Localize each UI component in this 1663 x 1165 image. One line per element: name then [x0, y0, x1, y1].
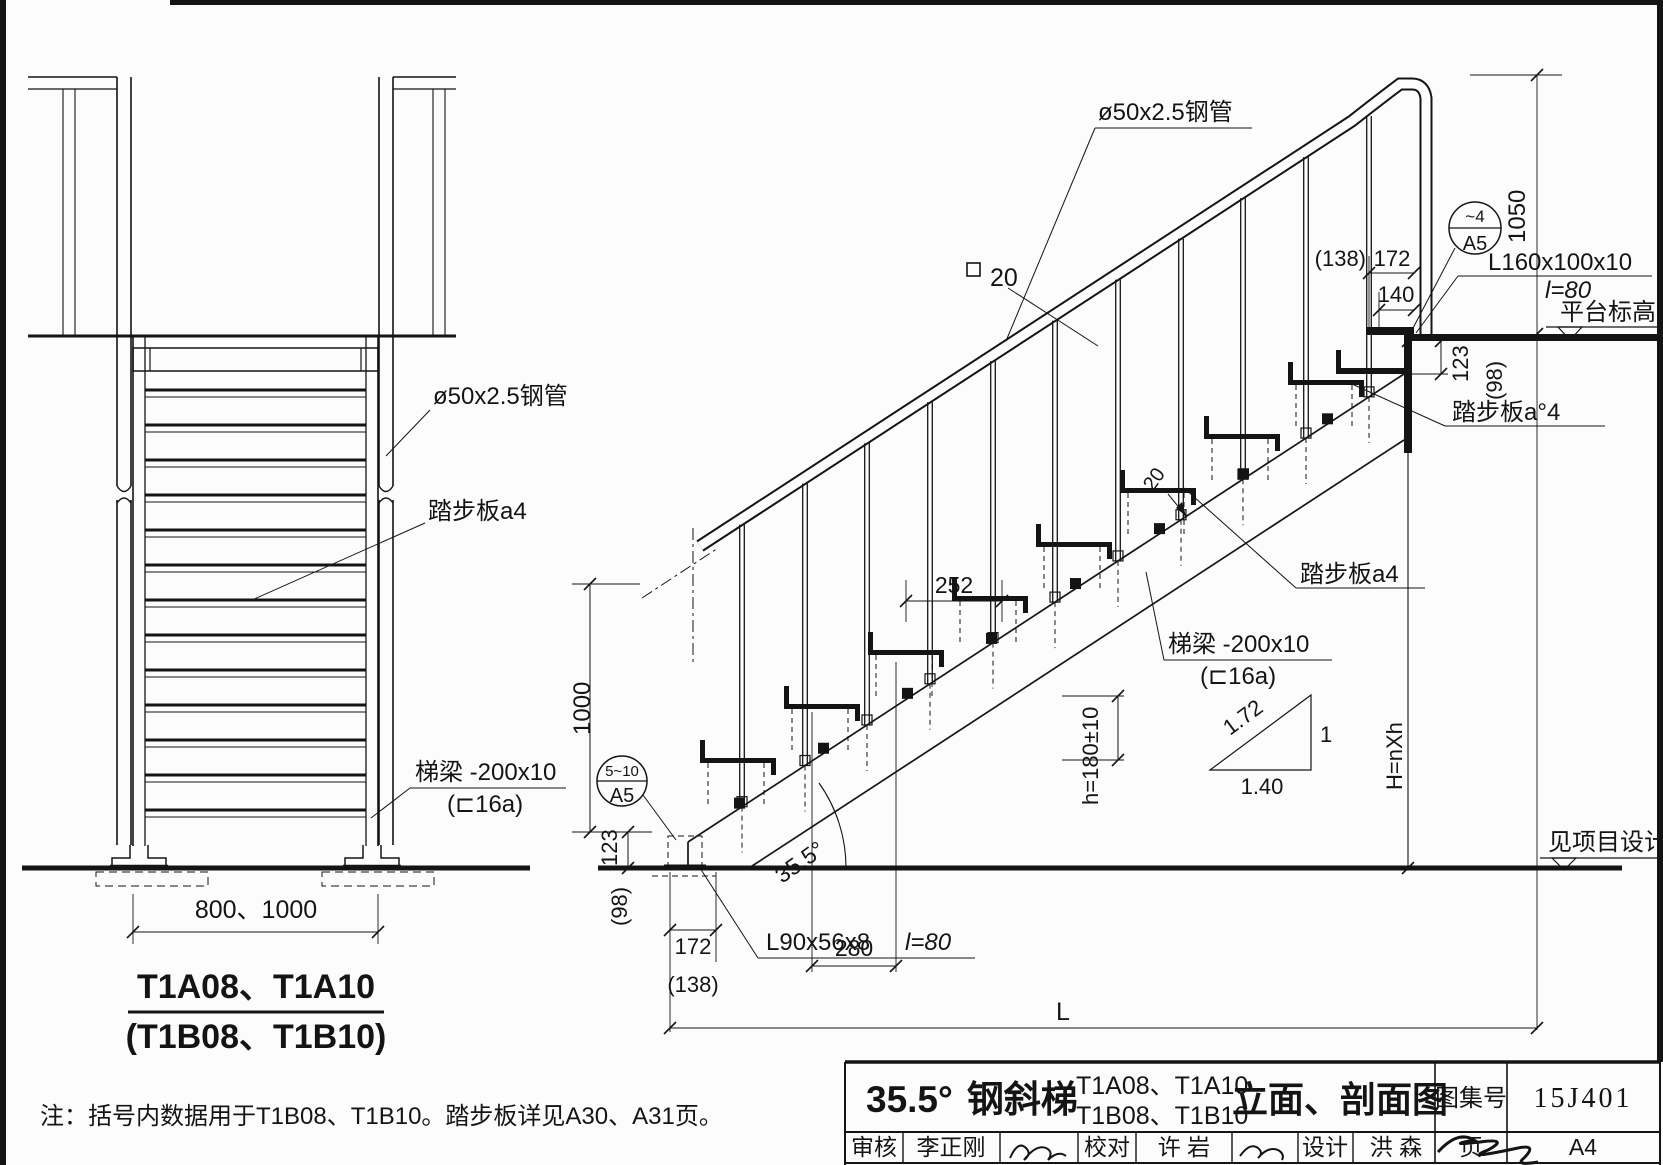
tread-bar [700, 758, 776, 763]
label-angle-cleat: L160x100x10 [1488, 249, 1632, 276]
dim-slope-angle: 35.5° [770, 836, 829, 888]
tread-downstub [771, 763, 776, 775]
title-block: 35.5°钢斜梯 T1A08、T1A10 T1B08、T1B10 立面、剖面图 … [845, 1062, 1660, 1165]
check-name: 许 岩 [1158, 1134, 1210, 1160]
view-title-1: T1A08、T1A10 [137, 968, 375, 1006]
step-dimensions: 252 280 h=180±10 35.5° [770, 572, 1124, 972]
slope-horizontal: 1.40 [1241, 774, 1284, 799]
tread-bar [1288, 380, 1364, 385]
tread-bar [1036, 542, 1112, 547]
tread-downstub [1359, 385, 1364, 397]
signature-checker [1240, 1146, 1283, 1160]
tread-downstub [1023, 601, 1028, 613]
tread-bar [1204, 434, 1280, 439]
label-base-cleat: L90x56x8 [766, 929, 870, 956]
label-pipe: ø50x2.5钢管 [433, 383, 568, 410]
tread-upstub [1288, 362, 1293, 380]
label-tread-mid: 踏步板a4 [1300, 561, 1399, 588]
label-ground-level: 见项目设计 [1548, 829, 1663, 856]
label-pipe: ø50x2.5钢管 [1098, 99, 1233, 126]
bottom-left-dimensions: 1000 5~10 A5 123 (98) 172 (138) L90x56x8… [569, 584, 1537, 1032]
front-view-title: T1A08、T1A10 (T1B08、T1B10) [126, 968, 387, 1056]
sheet-type: 立面、剖面图 [1232, 1079, 1448, 1120]
dim-138: (138) [1315, 246, 1366, 271]
tread-upstub [1036, 524, 1041, 542]
label-beam-2: (⊏16a) [1200, 663, 1276, 690]
signature-reviewer [1010, 1146, 1066, 1160]
check-label: 校对 [1084, 1134, 1130, 1160]
axis-line [642, 548, 718, 598]
weld-ref: A5 [610, 785, 634, 807]
dim-172-bottom: 172 [675, 934, 712, 959]
tread-seat [902, 688, 913, 699]
tread-seat [1154, 523, 1165, 534]
dim-1000: 1000 [569, 682, 596, 735]
width-dimension: 800、1000 [133, 894, 378, 944]
dim-98-bottom: (98) [607, 887, 632, 926]
tread-downstub [1275, 439, 1280, 451]
dim-height-formula: H=nXh [1382, 722, 1407, 790]
dim-98-top: (98) [1482, 361, 1507, 400]
review-label: 审核 [851, 1134, 897, 1160]
dim-140: 140 [1378, 282, 1415, 307]
dim-1050: 1050 [1504, 190, 1531, 243]
page-number: A4 [1569, 1134, 1597, 1160]
review-name: 李正刚 [917, 1134, 986, 1160]
weld-symbol: 5~10 [605, 763, 639, 780]
label-platform-level: 平台标高 [1560, 299, 1656, 326]
dim-span-L: L [1056, 998, 1070, 1026]
sheet-title-angle-product: 35.5°钢斜梯 [866, 1079, 1078, 1120]
tread-downstub [939, 655, 944, 667]
dim-123-top: 123 [1448, 345, 1473, 382]
tread-upstub [700, 740, 705, 758]
square-bar-icon [967, 263, 980, 276]
dim-riser-height: h=180±10 [1078, 707, 1103, 805]
foundation-dashed [322, 872, 434, 886]
tread-bar [1120, 488, 1196, 493]
tread-downstub [1191, 493, 1196, 505]
design-name: 洪 森 [1370, 1134, 1422, 1160]
atlas-number: 15J401 [1534, 1083, 1633, 1114]
slope-vertical: 1 [1320, 722, 1332, 747]
sheet-models-1: T1A08、T1A10 [1076, 1072, 1248, 1100]
dim-123-bottom: 123 [597, 829, 622, 866]
label-base-cleat-length: l=80 [905, 929, 952, 956]
label-beam: 梯梁 -200x10 [415, 759, 556, 786]
base-cleat-hidden [668, 836, 702, 868]
sheet-models-2: T1B08、T1B10 [1076, 1102, 1248, 1130]
weld-ref: A5 [1463, 233, 1487, 255]
tread-bar [784, 704, 860, 709]
tread-downstub [855, 709, 860, 721]
weld-symbol: ~4 [1465, 207, 1484, 226]
front-elevation: 800、1000 ø50x2.5钢管 踏步板a4 梯梁 -200x10 (⊏16… [22, 77, 723, 1130]
rail-labels: ø50x2.5钢管 20 [967, 99, 1252, 346]
tread-seat [1238, 468, 1249, 479]
label-beam: 梯梁 -200x10 [1168, 631, 1309, 658]
tread-seat [1322, 413, 1333, 424]
tread-upstub [784, 686, 789, 704]
dim-138-bottom: (138) [667, 972, 718, 997]
stringer-feet [110, 845, 401, 866]
dim-172: 172 [1374, 246, 1411, 271]
signature-designer [1438, 1137, 1538, 1163]
atlas-label: 图集号 [1435, 1085, 1507, 1112]
generated-geometry [127, 69, 1543, 1034]
foundation-dashed [96, 872, 208, 886]
drawing-canvas: 800、1000 ø50x2.5钢管 踏步板a4 梯梁 -200x10 (⊏16… [0, 0, 1663, 1165]
label-tread: 踏步板a4 [428, 498, 527, 525]
tread-bar [952, 596, 1028, 601]
side-elevation: 1050 ~4 A5 (138) 172 140 L160x100x10 l=8… [127, 69, 1663, 1034]
dim-width: 800、1000 [195, 896, 317, 924]
tread-seat [1070, 578, 1081, 589]
label-square-bar: 20 [990, 264, 1018, 292]
label-tread-top: 踏步板a°4 [1452, 399, 1560, 426]
drawing-sheet: 800、1000 ø50x2.5钢管 踏步板a4 梯梁 -200x10 (⊏16… [0, 0, 1663, 1165]
right-references: H=nXh 1.72 1 1.40 见项目设计 [1210, 694, 1663, 870]
tread-upstub [952, 578, 957, 596]
tread-seat [818, 743, 829, 754]
stringer-top-edge [688, 374, 1404, 842]
view-title-2: (T1B08、T1B10) [126, 1018, 387, 1056]
design-label: 设计 [1302, 1134, 1348, 1160]
tread-upstub [1204, 416, 1209, 434]
note-text: 注：括号内数据用于T1B08、T1B10。踏步板详见A30、A31页。 [40, 1103, 723, 1130]
tread-downstub [1107, 547, 1112, 559]
handrail-tube [700, 84, 1426, 546]
label-beam-2: (⊏16a) [447, 791, 523, 818]
mid-labels: 踏步板a4 梯梁 -200x10 (⊏16a) 20 [1139, 464, 1425, 690]
